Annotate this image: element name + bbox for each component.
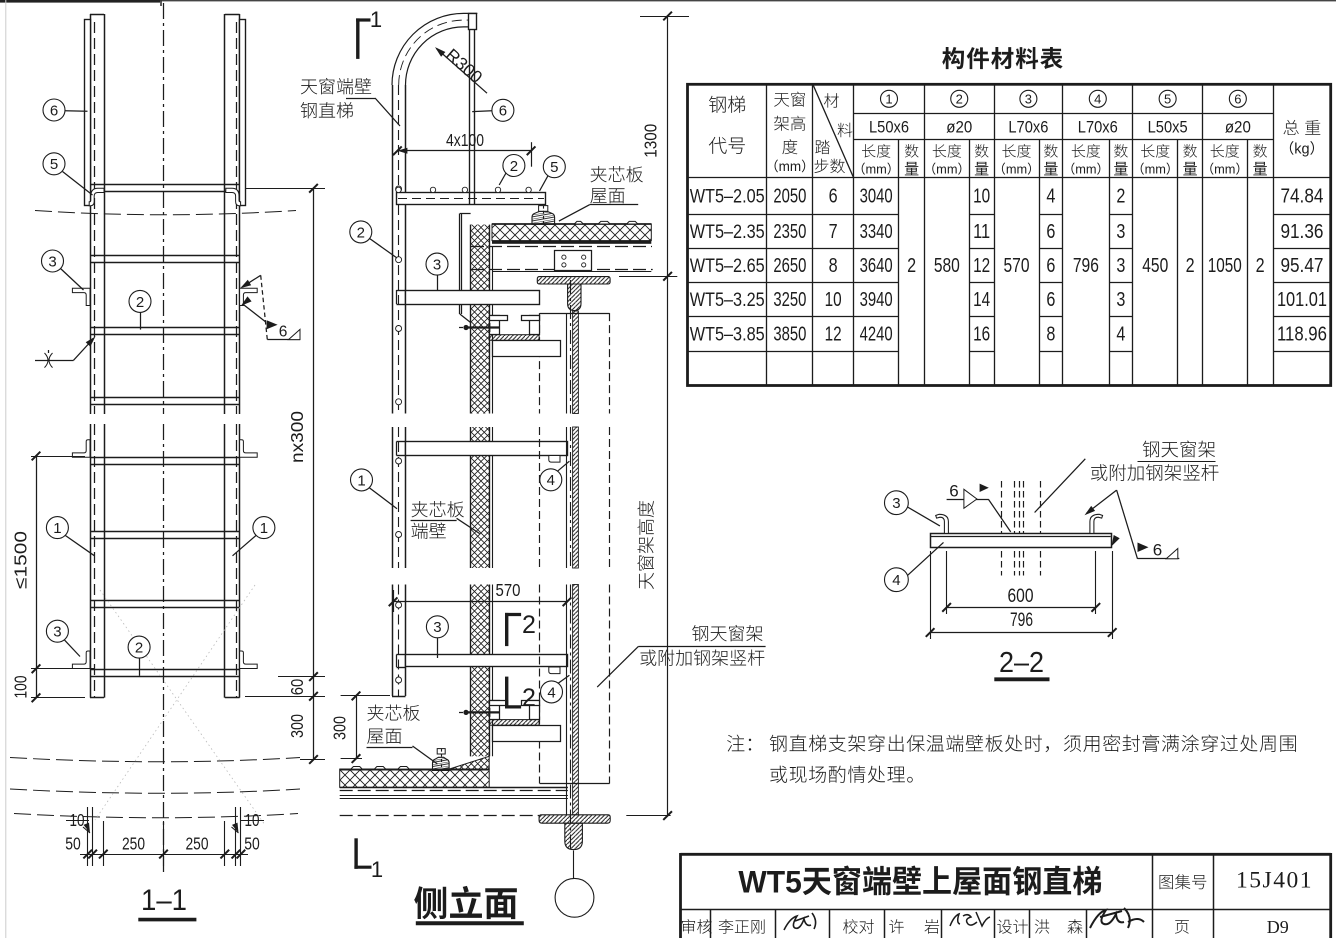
svg-text:2: 2 <box>522 611 536 639</box>
svg-text:3250: 3250 <box>773 289 806 311</box>
svg-text:2–2: 2–2 <box>999 647 1044 679</box>
svg-text:91.36: 91.36 <box>1280 221 1323 243</box>
svg-text:（mm）: （mm） <box>853 159 900 178</box>
svg-text:页: 页 <box>1174 914 1190 938</box>
svg-text:（mm）: （mm） <box>1201 159 1248 178</box>
svg-text:2: 2 <box>135 640 143 657</box>
svg-text:300: 300 <box>287 714 307 738</box>
svg-text:洪: 洪 <box>1034 914 1050 938</box>
svg-text:（mm）: （mm） <box>1062 159 1109 178</box>
svg-text:L70x6: L70x6 <box>1078 119 1118 137</box>
svg-text:600: 600 <box>1008 585 1034 607</box>
svg-text:100: 100 <box>11 675 31 698</box>
svg-text:钢天窗架: 钢天窗架 <box>1142 436 1216 462</box>
svg-text:3850: 3850 <box>773 324 806 346</box>
svg-text:量: 量 <box>974 158 989 179</box>
svg-text:5: 5 <box>50 156 58 173</box>
svg-text:1: 1 <box>357 472 365 489</box>
svg-text:95.47: 95.47 <box>1280 255 1323 277</box>
svg-text:8: 8 <box>829 255 838 277</box>
svg-text:6: 6 <box>1046 289 1055 311</box>
svg-text:1: 1 <box>371 857 383 882</box>
svg-text:构件材料表: 构件材料表 <box>942 40 1065 74</box>
svg-text:（mm）: （mm） <box>993 159 1040 178</box>
svg-text:总 重: 总 重 <box>1283 114 1322 139</box>
svg-text:WT5天窗端壁上屋面钢直梯: WT5天窗端壁上屋面钢直梯 <box>738 857 1102 903</box>
svg-text:WT5–2.05: WT5–2.05 <box>690 186 765 207</box>
svg-text:天窗端壁: 天窗端壁 <box>300 73 372 99</box>
svg-text:天窗架高度: 天窗架高度 <box>633 500 659 590</box>
svg-text:1–1: 1–1 <box>141 884 187 917</box>
svg-text:3: 3 <box>1116 289 1125 311</box>
svg-text:3340: 3340 <box>860 221 893 243</box>
svg-text:580: 580 <box>934 255 960 277</box>
svg-text:许: 许 <box>888 914 904 938</box>
svg-text:注：: 注： <box>726 730 764 757</box>
svg-text:3: 3 <box>1116 255 1125 277</box>
svg-text:图集号: 图集号 <box>1158 869 1208 893</box>
svg-text:1050: 1050 <box>1208 255 1242 277</box>
svg-text:D9: D9 <box>1267 917 1289 937</box>
svg-text:6: 6 <box>1046 221 1055 243</box>
svg-text:6: 6 <box>499 103 507 120</box>
svg-text:6: 6 <box>1046 255 1055 277</box>
svg-text:4: 4 <box>892 572 900 589</box>
svg-text:6: 6 <box>1234 91 1241 106</box>
svg-text:50: 50 <box>244 834 260 854</box>
svg-text:1: 1 <box>260 520 268 537</box>
svg-text:1: 1 <box>53 520 61 537</box>
svg-text:L50x6: L50x6 <box>869 119 909 137</box>
svg-text:10: 10 <box>825 289 842 311</box>
svg-text:6: 6 <box>949 482 958 501</box>
svg-text:量: 量 <box>1253 158 1268 179</box>
svg-text:14: 14 <box>973 289 990 311</box>
svg-text:2: 2 <box>136 294 144 311</box>
svg-text:量: 量 <box>1043 158 1058 179</box>
svg-text:60: 60 <box>287 679 307 696</box>
svg-text:审核: 审核 <box>680 914 712 938</box>
svg-text:5: 5 <box>550 159 558 176</box>
svg-text:3: 3 <box>53 624 61 641</box>
svg-text:4: 4 <box>1046 185 1055 207</box>
svg-text:3: 3 <box>433 257 441 274</box>
svg-text:天窗: 天窗 <box>773 87 806 111</box>
svg-text:2: 2 <box>1186 255 1195 277</box>
svg-text:3: 3 <box>48 253 56 270</box>
svg-text:8: 8 <box>1046 324 1055 346</box>
svg-text:架高: 架高 <box>773 111 806 135</box>
svg-text:（mm）: （mm） <box>923 159 970 178</box>
svg-text:L70x6: L70x6 <box>1008 119 1048 137</box>
svg-text:4: 4 <box>547 684 555 701</box>
svg-text:1: 1 <box>370 7 382 32</box>
svg-text:2350: 2350 <box>773 221 806 243</box>
svg-text:料: 料 <box>837 117 853 141</box>
svg-text:2: 2 <box>956 91 963 106</box>
svg-text:74.84: 74.84 <box>1280 185 1323 207</box>
svg-text:钢天窗架: 钢天窗架 <box>692 620 764 646</box>
svg-text:或附加钢架竖杆: 或附加钢架竖杆 <box>639 645 765 671</box>
svg-text:3040: 3040 <box>860 185 893 207</box>
svg-text:4x100: 4x100 <box>446 130 484 150</box>
svg-text:3: 3 <box>1116 221 1125 243</box>
svg-text:796: 796 <box>1073 255 1099 277</box>
svg-text:12: 12 <box>973 255 990 277</box>
svg-text:12: 12 <box>825 324 842 346</box>
svg-text:570: 570 <box>1004 255 1030 277</box>
svg-text:岩: 岩 <box>924 914 940 938</box>
svg-text:代号: 代号 <box>708 132 746 159</box>
svg-text:2: 2 <box>522 684 536 712</box>
svg-text:11: 11 <box>973 221 990 243</box>
svg-text:nx300: nx300 <box>287 411 307 463</box>
svg-text:5: 5 <box>1164 91 1171 106</box>
svg-text:李正刚: 李正刚 <box>718 914 766 938</box>
svg-text:6: 6 <box>829 185 838 207</box>
svg-text:或附加钢架竖杆: 或附加钢架竖杆 <box>1090 460 1220 486</box>
svg-text:7: 7 <box>829 221 838 243</box>
svg-text:2050: 2050 <box>773 185 806 207</box>
svg-text:森: 森 <box>1067 914 1083 938</box>
svg-text:250: 250 <box>122 834 145 854</box>
svg-text:材: 材 <box>823 88 839 112</box>
svg-text:量: 量 <box>1183 158 1198 179</box>
svg-text:量: 量 <box>904 158 919 179</box>
svg-text:300: 300 <box>330 716 350 740</box>
svg-text:ø20: ø20 <box>946 119 972 137</box>
svg-text:WT5–3.85: WT5–3.85 <box>690 325 765 346</box>
svg-text:1: 1 <box>885 91 892 106</box>
svg-text:2650: 2650 <box>773 255 806 277</box>
svg-text:4: 4 <box>1116 324 1125 346</box>
svg-text:4240: 4240 <box>860 324 893 346</box>
svg-text:钢直梯支架穿出保温端壁板处时，须用密封膏满涂穿过处周围: 钢直梯支架穿出保温端壁板处时，须用密封膏满涂穿过处周围 <box>769 730 1298 757</box>
svg-text:（mm）: （mm） <box>765 155 815 175</box>
svg-text:3: 3 <box>1025 91 1032 106</box>
svg-text:4: 4 <box>547 472 555 489</box>
svg-text:侧立面: 侧立面 <box>413 876 518 927</box>
svg-text:端壁: 端壁 <box>411 518 447 544</box>
svg-text:10: 10 <box>973 185 990 207</box>
svg-text:量: 量 <box>1113 158 1128 179</box>
svg-text:250: 250 <box>186 834 209 854</box>
svg-text:设计: 设计 <box>996 914 1028 938</box>
svg-text:3: 3 <box>433 619 441 636</box>
svg-text:2: 2 <box>907 255 916 277</box>
svg-text:2: 2 <box>510 158 518 175</box>
svg-text:118.96: 118.96 <box>1277 324 1327 346</box>
svg-text:L50x5: L50x5 <box>1148 119 1188 137</box>
svg-text:ø20: ø20 <box>1225 119 1251 137</box>
svg-text:钢直梯: 钢直梯 <box>300 97 354 123</box>
svg-text:3640: 3640 <box>860 255 893 277</box>
svg-text:6: 6 <box>1153 541 1162 560</box>
svg-text:796: 796 <box>1010 609 1033 631</box>
svg-text:或现场酌情处理。: 或现场酌情处理。 <box>769 761 926 788</box>
svg-text:（kg）: （kg） <box>1280 138 1324 159</box>
svg-text:1300: 1300 <box>641 123 661 157</box>
svg-text:6: 6 <box>279 324 288 341</box>
svg-text:钢梯: 钢梯 <box>708 91 746 118</box>
svg-text:6: 6 <box>50 102 58 119</box>
svg-text:校对: 校对 <box>842 914 874 938</box>
svg-text:4: 4 <box>1094 91 1101 106</box>
svg-text:101.01: 101.01 <box>1277 289 1327 311</box>
svg-text:（mm）: （mm） <box>1132 159 1179 178</box>
svg-text:3940: 3940 <box>860 289 893 311</box>
svg-text:2: 2 <box>1256 255 1265 277</box>
svg-text:570: 570 <box>496 580 521 600</box>
svg-text:WT5–2.35: WT5–2.35 <box>690 222 765 243</box>
svg-text:15J401: 15J401 <box>1236 868 1313 894</box>
svg-text:16: 16 <box>973 324 990 346</box>
svg-text:2: 2 <box>1116 185 1125 207</box>
svg-text:屋面: 屋面 <box>367 723 403 749</box>
svg-text:步数: 步数 <box>813 153 845 177</box>
svg-text:≤1500: ≤1500 <box>11 531 31 589</box>
svg-text:WT5–3.25: WT5–3.25 <box>690 290 765 311</box>
svg-text:3: 3 <box>892 495 900 512</box>
svg-text:WT5–2.65: WT5–2.65 <box>690 256 765 277</box>
svg-text:50: 50 <box>65 834 81 854</box>
svg-text:450: 450 <box>1142 255 1168 277</box>
svg-text:2: 2 <box>357 224 365 241</box>
